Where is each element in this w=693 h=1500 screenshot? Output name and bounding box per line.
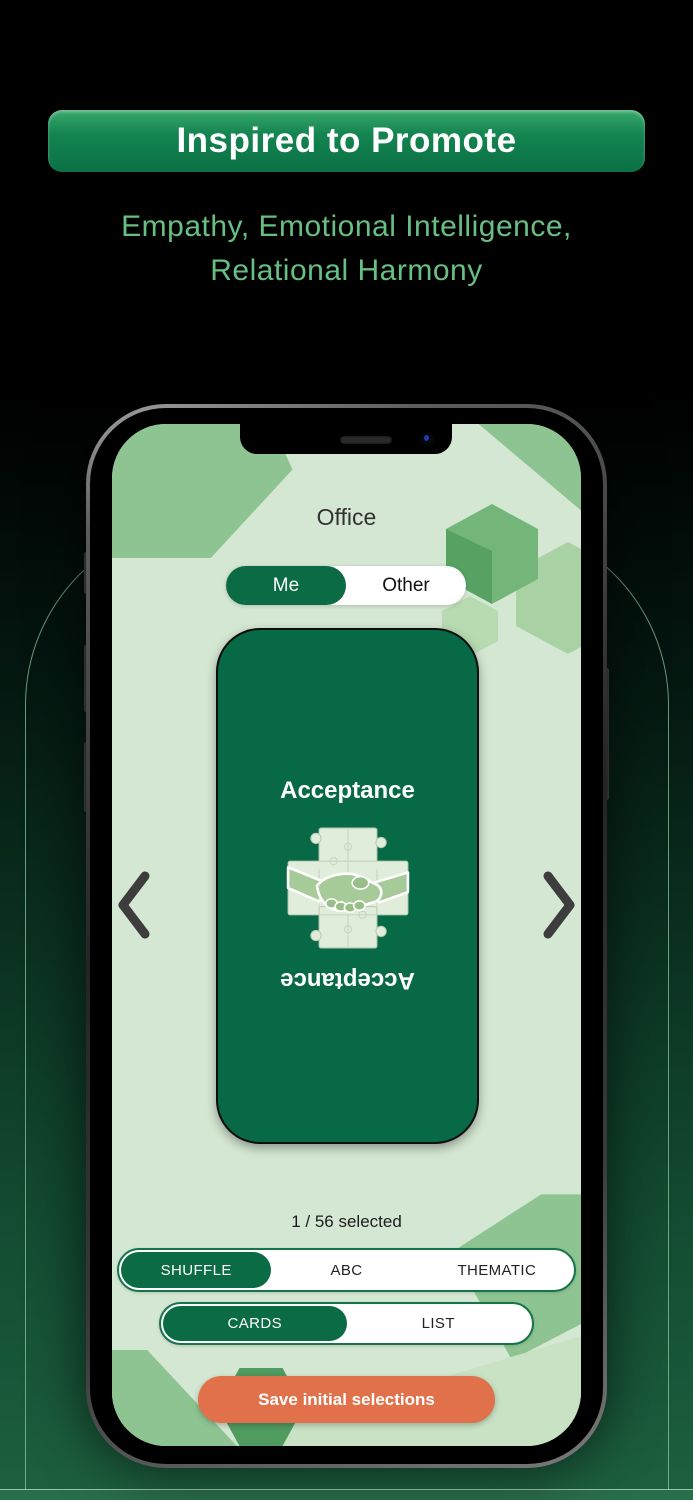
value-card[interactable]: Acceptance: [216, 628, 479, 1144]
subject-toggle-me[interactable]: Me: [226, 566, 346, 605]
selection-status: 1 / 56 selected: [112, 1212, 581, 1232]
promo-banner: Inspired to Promote: [48, 110, 645, 172]
tagline-line2: Relational Harmony: [0, 249, 693, 293]
sort-toggle-shuffle[interactable]: SHUFFLE: [121, 1252, 271, 1288]
sort-toggle-abc[interactable]: ABC: [271, 1252, 421, 1288]
tagline-line1: Empathy, Emotional Intelligence,: [0, 205, 693, 249]
card-title-mirrored: Acceptance: [218, 966, 477, 994]
chevron-right-icon[interactable]: [540, 868, 578, 942]
phone-mockup: Office Me Other Acceptance: [86, 404, 607, 1468]
handshake-puzzle-icon: [286, 826, 410, 950]
promo-banner-title: Inspired to Promote: [176, 121, 516, 161]
save-initial-selections-button[interactable]: Save initial selections: [198, 1376, 495, 1423]
view-toggle-list[interactable]: LIST: [347, 1306, 531, 1341]
promo-graphic: Inspired to Promote Empathy, Emotional I…: [0, 0, 693, 1500]
app-screen: Office Me Other Acceptance: [112, 424, 581, 1446]
speaker-grille: [340, 436, 392, 444]
save-button-label: Save initial selections: [258, 1390, 435, 1410]
subject-toggle-other[interactable]: Other: [346, 566, 466, 605]
subject-toggle: Me Other: [226, 566, 466, 605]
polygon-decoration: [472, 424, 581, 514]
chevron-left-icon[interactable]: [115, 868, 153, 942]
sort-toggle-thematic[interactable]: THEMATIC: [422, 1252, 572, 1288]
view-toggle: CARDS LIST: [159, 1302, 534, 1345]
front-camera: [420, 432, 435, 447]
camera-lens-glint: [424, 435, 429, 441]
card-title: Acceptance: [218, 777, 477, 805]
tagline: Empathy, Emotional Intelligence, Relatio…: [0, 205, 693, 293]
phone-notch: [240, 424, 452, 454]
sort-toggle: SHUFFLE ABC THEMATIC: [117, 1248, 576, 1292]
view-toggle-cards[interactable]: CARDS: [163, 1306, 347, 1341]
page-title: Office: [112, 504, 581, 531]
footer-strip-decoration: [0, 1489, 693, 1500]
